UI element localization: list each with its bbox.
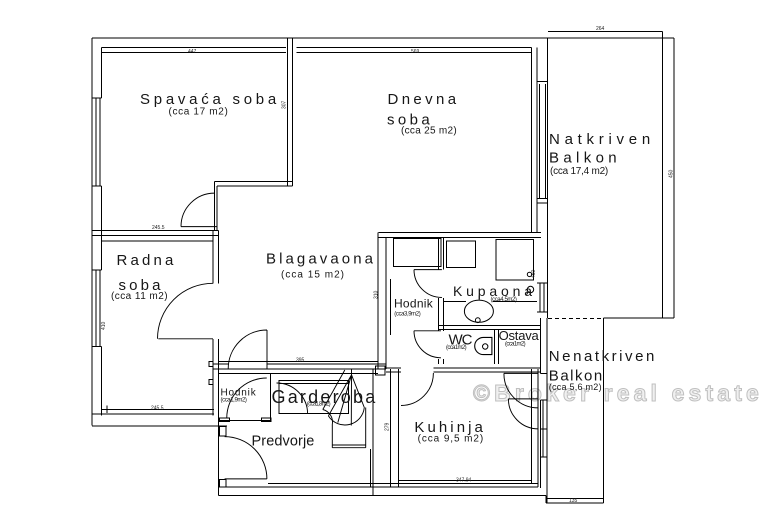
svg-text:569: 569 [411,49,420,55]
svg-text:(cca 15 m2): (cca 15 m2) [281,270,345,281]
svg-text:245.5: 245.5 [152,225,165,231]
svg-text:347.94: 347.94 [456,478,472,484]
svg-text:Spavaća soba: Spavaća soba [140,91,280,108]
svg-text:447: 447 [188,49,197,55]
svg-text:450: 450 [531,269,537,278]
svg-text:(cca 9,5 m2): (cca 9,5 m2) [418,434,485,445]
svg-text:450: 450 [669,169,675,178]
svg-text:(cca4,5m2): (cca4,5m2) [491,297,517,303]
svg-text:Nenatkriven: Nenatkriven [549,348,657,365]
svg-text:(cca1m2): (cca1m2) [446,345,467,351]
svg-text:(cca 25 m2): (cca 25 m2) [401,126,457,137]
svg-text:395: 395 [296,358,305,364]
svg-text:(cca 17 m2): (cca 17 m2) [169,107,229,118]
svg-text:Hodnik: Hodnik [394,297,434,311]
svg-text:(cca1m2): (cca1m2) [505,342,526,348]
svg-text:Blagavaona: Blagavaona [266,251,376,268]
svg-text:(cca 11 m2): (cca 11 m2) [111,291,168,302]
svg-text:307: 307 [282,100,288,109]
svg-text:Dnevna: Dnevna [388,91,460,108]
svg-text:310: 310 [374,290,380,299]
svg-text:(cca3,9m2): (cca3,9m2) [394,312,420,318]
svg-text:(cca 5,6 m2): (cca 5,6 m2) [549,382,602,392]
svg-text:(cca1,8m2): (cca1,8m2) [307,402,331,408]
svg-text:135: 135 [569,498,578,504]
svg-text:Balkon: Balkon [549,150,621,167]
svg-text:(cca 17,4 m2): (cca 17,4 m2) [550,166,608,177]
svg-text:(cca1,9m2): (cca1,9m2) [221,398,247,404]
svg-text:410: 410 [101,321,107,330]
svg-text:Radna: Radna [117,252,177,269]
svg-text:Predvorje: Predvorje [252,434,315,450]
svg-text:©Broker real estate: ©Broker real estate [473,380,763,406]
svg-text:245.5: 245.5 [151,406,164,412]
svg-text:279: 279 [385,422,391,431]
svg-text:Natkriven: Natkriven [549,131,655,148]
svg-text:264: 264 [596,26,605,32]
